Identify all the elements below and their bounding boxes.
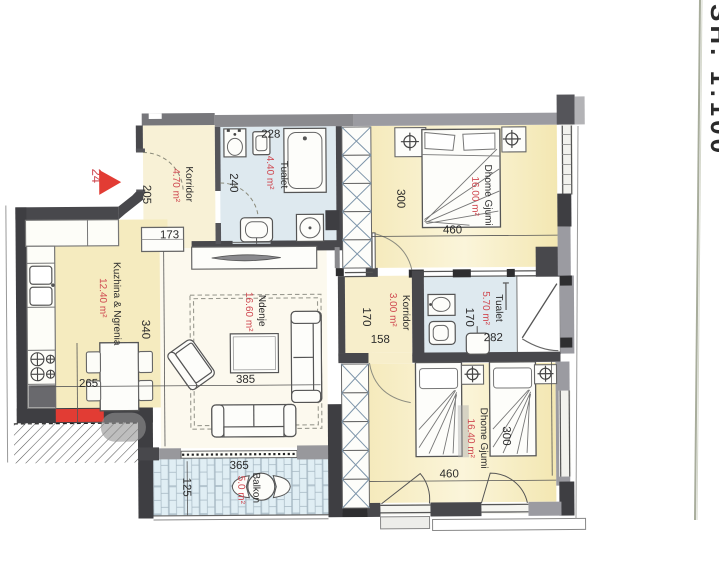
svg-text:16.40 m²: 16.40 m²: [465, 418, 476, 458]
svg-text:Dhome Gjumi: Dhome Gjumi: [478, 408, 489, 469]
svg-text:460: 460: [440, 468, 459, 480]
svg-text:5.70 m²: 5.70 m²: [480, 291, 491, 326]
svg-text:460: 460: [443, 224, 462, 236]
svg-text:300: 300: [394, 189, 406, 208]
svg-text:Ndenje: Ndenje: [256, 295, 267, 327]
svg-text:5.0 m²: 5.0 m²: [235, 476, 246, 505]
svg-text:228: 228: [261, 129, 280, 141]
svg-text:340: 340: [139, 320, 151, 339]
svg-text:240: 240: [227, 173, 239, 192]
svg-text:Dhome Gjumi: Dhome Gjumi: [482, 164, 493, 225]
svg-text:Kuzhina & Ngrenia: Kuzhina & Ngrenia: [111, 262, 123, 346]
svg-text:300: 300: [500, 426, 512, 445]
svg-text:12.40 m²: 12.40 m²: [97, 278, 108, 318]
svg-text:158: 158: [371, 334, 390, 346]
svg-text:Tualet: Tualet: [493, 294, 504, 322]
svg-text:Korridor: Korridor: [183, 166, 194, 202]
svg-text:385: 385: [236, 374, 255, 386]
svg-text:Tualet: Tualet: [278, 161, 289, 189]
svg-text:Korridor: Korridor: [400, 295, 411, 331]
svg-text:365: 365: [230, 460, 249, 472]
svg-text:170: 170: [360, 307, 372, 326]
svg-text:16.00 m²: 16.00 m²: [469, 176, 480, 216]
svg-text:205: 205: [140, 185, 152, 204]
svg-text:173: 173: [160, 229, 179, 241]
svg-text:4.40 m²: 4.40 m²: [264, 156, 275, 191]
svg-text:3.00 m²: 3.00 m²: [387, 293, 398, 328]
svg-text:125: 125: [180, 478, 192, 497]
svg-text:SH. 1:100: SH. 1:100: [705, 4, 719, 157]
svg-text:282: 282: [484, 332, 503, 344]
svg-text:16.60 m²: 16.60 m²: [243, 292, 254, 332]
svg-text:Balkon: Balkon: [250, 472, 261, 503]
svg-text:265: 265: [79, 378, 98, 390]
svg-text:170: 170: [463, 308, 475, 327]
svg-text:4.70 m²: 4.70 m²: [170, 168, 181, 203]
